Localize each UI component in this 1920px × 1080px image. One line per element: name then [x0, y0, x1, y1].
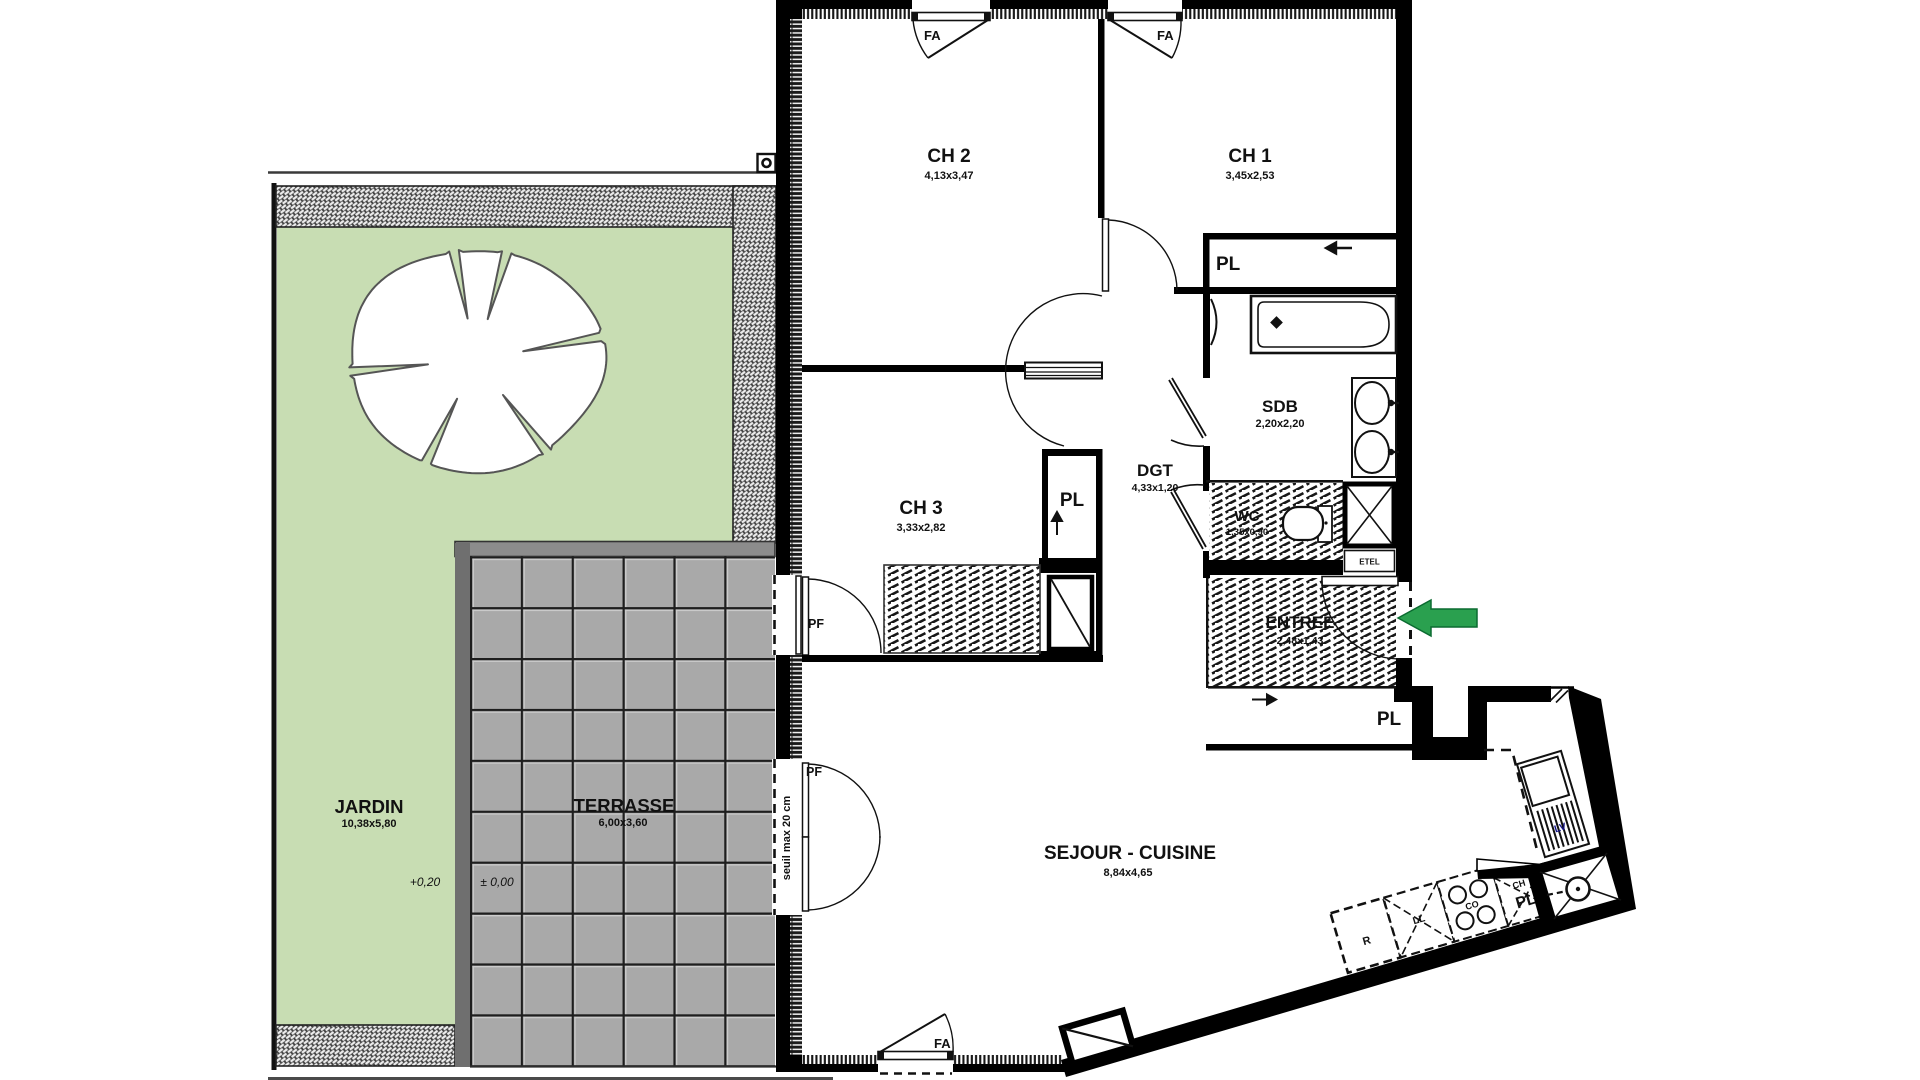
svg-text:DGT: DGT [1137, 461, 1174, 480]
svg-text:PL: PL [1060, 490, 1085, 511]
svg-text:2,48x1,43: 2,48x1,43 [1277, 635, 1324, 647]
svg-text:SEJOUR - CUISINE: SEJOUR - CUISINE [1044, 843, 1216, 864]
svg-text:8,84x4,65: 8,84x4,65 [1104, 867, 1153, 879]
svg-text:6,00x3,60: 6,00x3,60 [599, 817, 648, 829]
svg-text:WC: WC [1235, 508, 1260, 525]
svg-text:4,13x3,47: 4,13x3,47 [925, 170, 974, 182]
svg-text:seuil max 20 cm: seuil max 20 cm [781, 796, 793, 881]
svg-text:FA: FA [1157, 28, 1174, 43]
svg-text:3,33x2,82: 3,33x2,82 [897, 522, 946, 534]
svg-text:PF: PF [808, 617, 824, 631]
svg-text:3,45x2,53: 3,45x2,53 [1226, 170, 1275, 182]
svg-text:PL: PL [1216, 254, 1241, 275]
svg-text:± 0,00: ± 0,00 [480, 875, 514, 889]
svg-text:+0,20: +0,20 [410, 875, 441, 889]
svg-text:CH 3: CH 3 [899, 498, 942, 519]
svg-text:PL: PL [1377, 709, 1402, 730]
svg-text:2,20x2,20: 2,20x2,20 [1256, 418, 1305, 430]
svg-text:ENTREE: ENTREE [1266, 613, 1335, 632]
svg-text:JARDIN: JARDIN [335, 796, 404, 817]
svg-text:SDB: SDB [1262, 397, 1298, 416]
svg-text:ETEL: ETEL [1359, 558, 1380, 567]
svg-text:1,35x0,90: 1,35x0,90 [1226, 527, 1268, 538]
svg-text:10,38x5,80: 10,38x5,80 [341, 818, 396, 830]
svg-text:PF: PF [806, 765, 822, 779]
svg-text:4,33x1,20: 4,33x1,20 [1132, 482, 1179, 494]
svg-text:CH 1: CH 1 [1228, 146, 1272, 167]
svg-text:CH 2: CH 2 [927, 146, 970, 167]
svg-text:TERRASSE: TERRASSE [574, 795, 675, 816]
svg-text:FA: FA [934, 1036, 951, 1051]
svg-text:FA: FA [924, 28, 941, 43]
